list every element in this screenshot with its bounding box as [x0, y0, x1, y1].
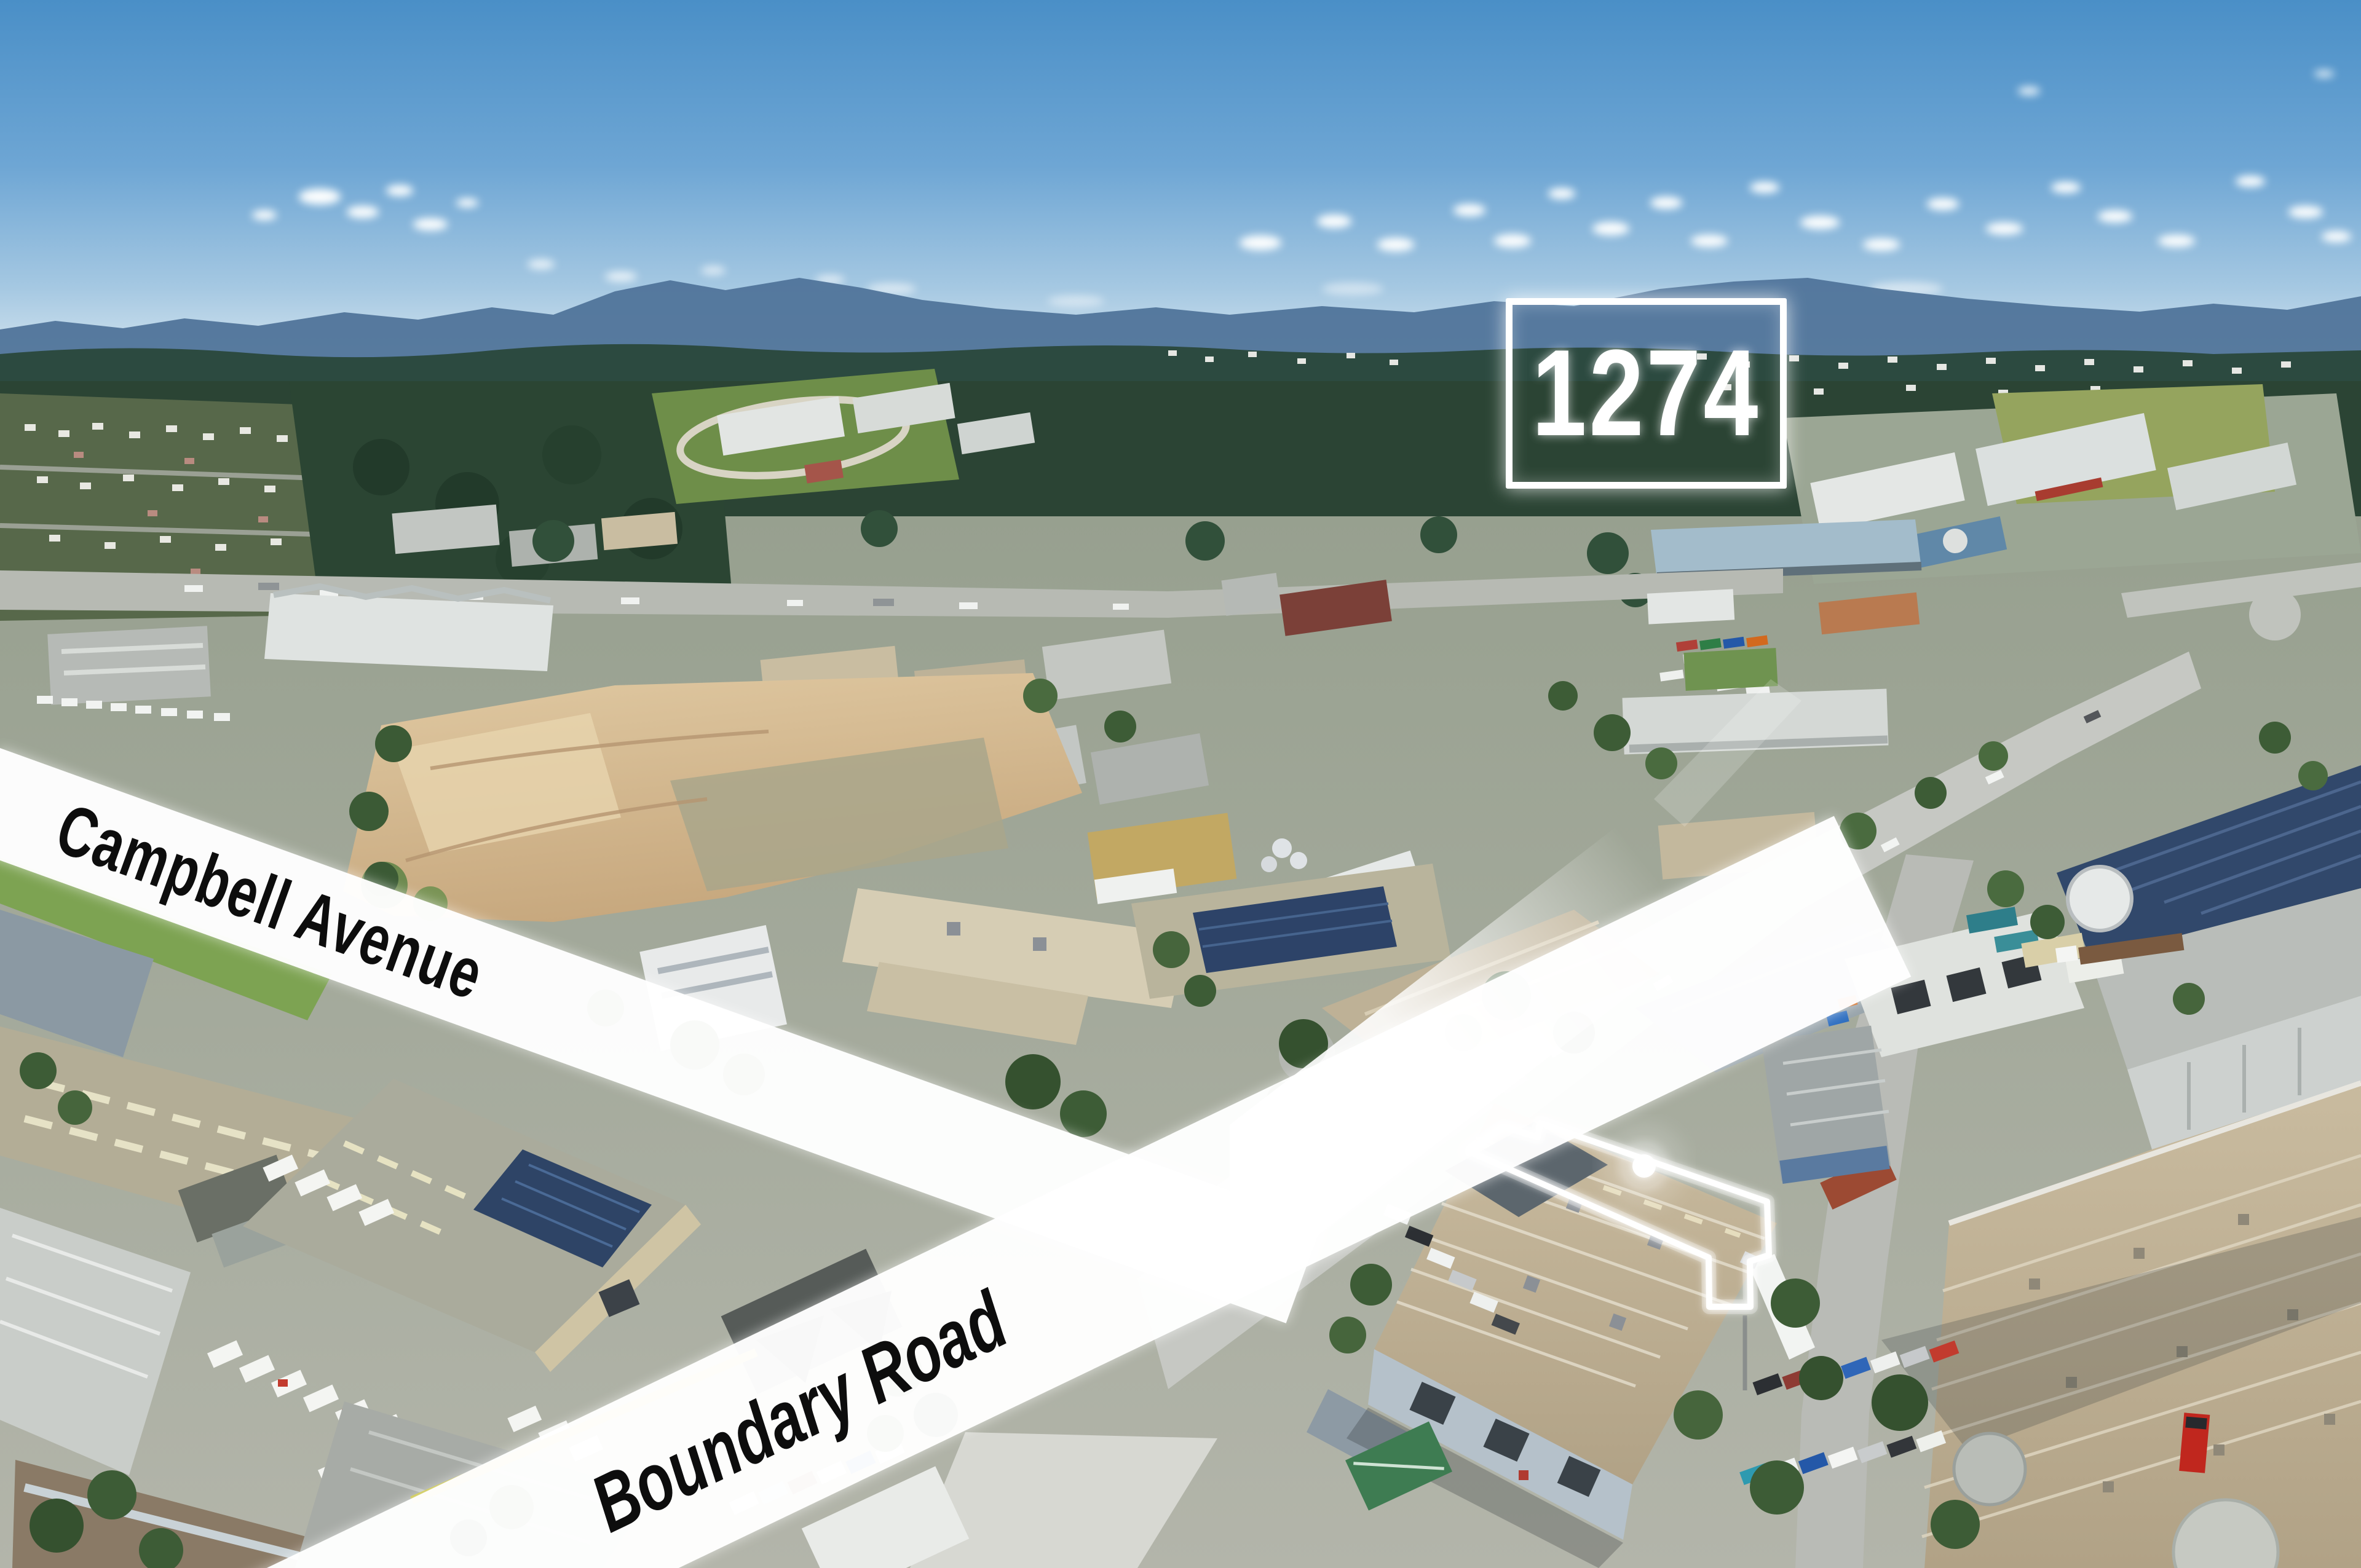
property-number-box: 1274	[1506, 298, 1787, 489]
property-number: 1274	[1532, 323, 1761, 464]
aerial-photo: Campbell Avenue Boundary Road 1274	[0, 0, 2361, 1568]
aerial-photo-backdrop	[0, 0, 2361, 1568]
